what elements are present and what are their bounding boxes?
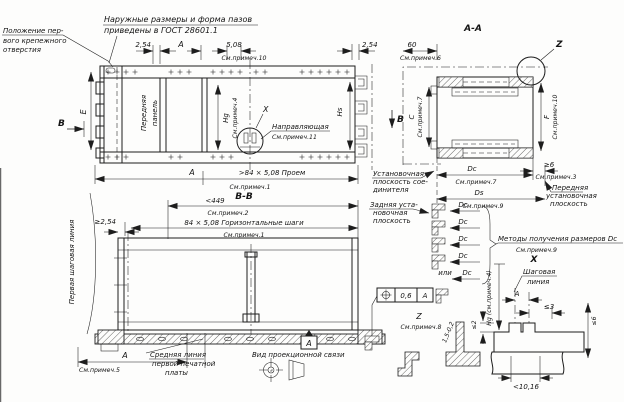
- first-hole-line3: отверстия: [3, 46, 41, 54]
- projection-view: Вид проекционной связи: [252, 351, 345, 382]
- dim-c-note: См.примеч.7: [417, 96, 424, 137]
- dc-row-4: Dc: [432, 252, 480, 269]
- dim-a-bottom: А: [121, 351, 127, 360]
- mid-line-label-3: платы: [165, 369, 188, 377]
- detail-x: Х Шаговая линия А ≤3 ≤2 Hg (см.примеч.4)…: [471, 255, 598, 391]
- front-view: Передняя панель Hg См.примеч.4 Х Направл…: [58, 60, 404, 170]
- dim-slot-1016: <10,16: [513, 383, 539, 391]
- dim-dc-note: См.примеч.7: [456, 179, 497, 186]
- first-angle-projection-icon: [259, 358, 304, 382]
- opening-dimension: А >84 × 5,08 Проем См.примеч.1 В-В: [95, 165, 358, 202]
- depth-dimensions: Dc См.примеч.7 ≥6 См.примеч.3 Ds См.прим…: [369, 158, 597, 225]
- dim-hg-ref: Hg (см.примеч.4): [486, 270, 493, 325]
- dim-hg: Hg: [222, 113, 230, 123]
- opening-dim-note: См.примеч.1: [230, 184, 271, 191]
- dim-254-right: 2,54: [362, 41, 378, 49]
- plane-rear-1: Задняя уста-: [370, 201, 418, 209]
- dim-min6-note: См.примеч.3: [536, 174, 577, 181]
- projection-label: Вид проекционной связи: [252, 351, 345, 359]
- dim-ds: Ds: [474, 189, 483, 197]
- dim-508: 5,08: [226, 41, 242, 49]
- first-pitch-line-label: Первая шаговая линия: [68, 220, 76, 305]
- rail-profile: [494, 323, 584, 352]
- dc-or-label: или: [438, 269, 452, 277]
- dim-ds-note: См.примеч.9: [463, 203, 504, 210]
- plane-front-2: установочная: [545, 192, 597, 200]
- dim-254-left: 2,54: [135, 41, 151, 49]
- gost-drawing-screenshot: Наружные размеры и форма пазов приведены…: [0, 0, 624, 402]
- connector-hooks-right: [355, 76, 367, 157]
- plus-marks-bottom: [106, 155, 350, 160]
- front-panel-label-1: Передняя: [140, 95, 148, 131]
- dc-row-label: Dc: [458, 252, 467, 260]
- guide-label: Направляющая: [272, 123, 329, 131]
- datum-a: А: [301, 330, 317, 349]
- dim-f: F: [543, 114, 551, 119]
- plane-front-1: Передняя: [552, 184, 588, 192]
- section-aa: А-А 60 См.примеч.6 С См.примеч.7 F См.пр…: [400, 24, 563, 165]
- dim-dc: Dc: [467, 165, 476, 173]
- first-pitch-leader: [87, 193, 96, 334]
- dim-60: 60: [408, 41, 417, 49]
- dc-row-label: Dc: [462, 269, 471, 277]
- plane-front-3: плоскость: [550, 200, 588, 208]
- section-bb-title: В-В: [235, 192, 253, 202]
- plane-connector-2: плоскость сое-: [373, 178, 428, 186]
- dim-c: С: [408, 114, 416, 119]
- opening-dim-label: >84 × 5,08 Проем: [239, 169, 306, 177]
- dc-row-5: или Dc: [438, 269, 480, 279]
- dim-449-note: См.примеч.2: [208, 210, 249, 217]
- dim-steps: 84 × 5,08 Горизонтальные шаги: [184, 219, 304, 227]
- pitch-line-label-1: Шаговая: [523, 268, 555, 276]
- section-arrow-b-left: В: [58, 119, 65, 129]
- opening-a-label: А: [188, 168, 194, 177]
- dim-a-top: А: [177, 40, 183, 49]
- plus-marks-top: [106, 70, 350, 75]
- position-tolerance-icon: [381, 290, 392, 301]
- tolerance-frame: 0,6 А: [365, 288, 448, 350]
- dim-max6: ≤6: [591, 316, 598, 325]
- rail-end-left: [98, 330, 124, 344]
- dim-min6: ≥6: [544, 161, 555, 169]
- dim-449: <449: [205, 197, 225, 205]
- note-first-hole: Положение пер- вого крепежного отверстия: [2, 27, 113, 67]
- dc-row-label: Dc: [458, 201, 467, 209]
- dim-e: Е: [79, 109, 88, 115]
- detail-z: Z См.примеч.8 1,5-0,2: [398, 312, 480, 376]
- detail-z-label: Z: [415, 312, 422, 321]
- section-aa-title: А-А: [463, 24, 482, 34]
- dim-hg-note: См.примеч.4: [232, 97, 239, 138]
- plane-rear-2: новочная: [373, 209, 407, 217]
- dc-row-label: Dc: [458, 218, 467, 226]
- first-hole-line1: Положение пер-: [3, 27, 64, 35]
- outer-note-line1: Наружные размеры и форма пазов: [104, 15, 252, 24]
- mid-line-label-2: первой печатной: [152, 360, 216, 368]
- outer-note-line2: приведены в ГОСТ 28601.1: [104, 26, 218, 35]
- detail-z-note: См.примеч.8: [401, 324, 442, 331]
- x-callout-label: Х: [262, 105, 269, 114]
- base-block: [491, 352, 564, 374]
- pitch-line-label-2: линия: [526, 278, 549, 286]
- view-bb: <449 См.примеч.2 84 × 5,08 Горизонтальны…: [68, 193, 385, 351]
- guide-note: См.примеч.11: [272, 134, 317, 141]
- mid-line-label-1: Средняя линия: [150, 351, 206, 359]
- dc-row-3: Dc: [432, 235, 480, 252]
- dim-f-note: См.примеч.10: [552, 94, 559, 139]
- dim-a-bottom-note: См.примеч.5: [79, 367, 120, 374]
- outer-note-leader: [109, 36, 117, 63]
- dc-row-label: Dc: [458, 235, 467, 243]
- first-hole-leader: [63, 35, 113, 67]
- methods-label: Методы получения размеров Dc: [498, 235, 617, 243]
- tolerance-value: 0,6: [400, 292, 412, 300]
- datum-a-label: А: [305, 339, 311, 348]
- top-dimensions: 2,54 А 5,08 См.примеч.10 2,54: [135, 40, 377, 64]
- dim-60-note: См.примеч.6: [400, 55, 441, 62]
- z-callout-label: Z: [555, 40, 563, 50]
- methods-note: См.примеч.9: [516, 247, 557, 254]
- dc-row-2: Dc: [432, 218, 480, 235]
- bottom-rail-hatch: [95, 334, 385, 344]
- detail-z-thickness: 1,5-0,2: [441, 321, 456, 344]
- plane-connector-1: Установочная: [373, 170, 424, 178]
- drawing-canvas: Наружные размеры и форма пазов приведены…: [0, 0, 624, 402]
- first-hole-line2: вого крепежного: [3, 37, 67, 45]
- dim-508-note: См.примеч.10: [222, 55, 267, 62]
- dim-a-detail: А: [514, 290, 520, 298]
- tolerance-datum: А: [422, 292, 428, 300]
- dim-min254: ≥2,54: [95, 218, 116, 226]
- plane-rear-3: плоскость: [373, 217, 411, 225]
- dim-hs: Hs: [336, 107, 344, 116]
- detail-x-title: Х: [530, 255, 539, 265]
- dim-max2: ≤2: [471, 320, 478, 329]
- plane-connector-3: динителя: [372, 186, 409, 194]
- front-panel-label-2: панель: [151, 100, 159, 126]
- dim-max3: ≤3: [544, 303, 554, 311]
